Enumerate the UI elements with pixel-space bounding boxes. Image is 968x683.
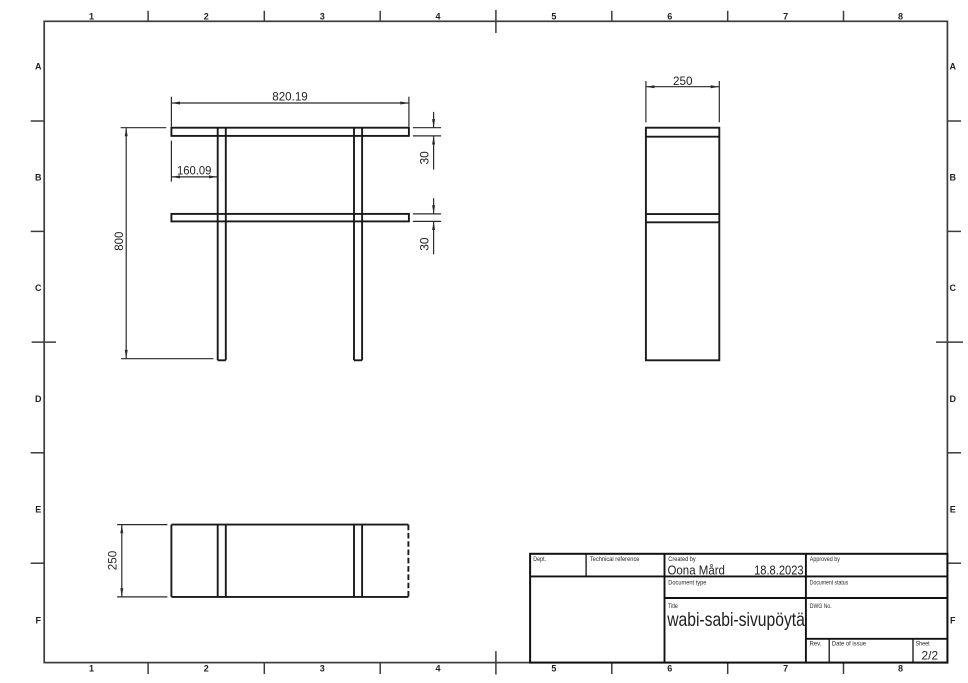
svg-text:6: 6 — [667, 663, 672, 673]
svg-text:Created by: Created by — [668, 556, 696, 563]
svg-text:DWG No.: DWG No. — [810, 603, 832, 610]
svg-text:30: 30 — [417, 151, 431, 165]
svg-text:7: 7 — [783, 663, 788, 673]
svg-text:F: F — [950, 615, 956, 625]
svg-text:Document type: Document type — [668, 580, 707, 587]
svg-text:Dept.: Dept. — [533, 556, 546, 563]
svg-text:1: 1 — [89, 11, 94, 21]
svg-text:4: 4 — [435, 11, 440, 21]
svg-text:18.8.2023: 18.8.2023 — [754, 564, 804, 578]
svg-text:A: A — [950, 62, 957, 72]
svg-text:D: D — [950, 394, 957, 404]
svg-text:8: 8 — [898, 11, 903, 21]
svg-text:30: 30 — [417, 237, 431, 251]
svg-text:2: 2 — [204, 11, 209, 21]
svg-text:5: 5 — [551, 663, 556, 673]
svg-text:B: B — [950, 172, 957, 182]
svg-text:E: E — [35, 505, 41, 515]
svg-text:8: 8 — [898, 663, 903, 673]
svg-text:E: E — [950, 505, 956, 515]
svg-text:4: 4 — [435, 663, 440, 673]
svg-text:250: 250 — [673, 74, 693, 88]
svg-text:F: F — [35, 615, 41, 625]
svg-text:Rev.: Rev. — [810, 640, 822, 647]
svg-text:5: 5 — [551, 11, 556, 21]
svg-text:wabi-sabi-sivupöytä: wabi-sabi-sivupöytä — [666, 609, 805, 631]
svg-text:Sheet: Sheet — [916, 640, 930, 647]
svg-text:820.19: 820.19 — [272, 89, 308, 103]
svg-text:6: 6 — [667, 11, 672, 21]
svg-text:C: C — [35, 283, 42, 293]
svg-text:3: 3 — [320, 11, 325, 21]
svg-text:2/2: 2/2 — [922, 649, 939, 663]
svg-text:D: D — [35, 394, 42, 404]
svg-text:2: 2 — [204, 663, 209, 673]
svg-text:1: 1 — [89, 663, 94, 673]
svg-text:160.09: 160.09 — [177, 164, 212, 178]
svg-text:250: 250 — [106, 550, 120, 570]
svg-text:3: 3 — [320, 663, 325, 673]
svg-text:Oona Mård: Oona Mård — [668, 563, 725, 577]
svg-text:Document status: Document status — [810, 580, 848, 587]
svg-text:Date of issue: Date of issue — [832, 641, 867, 648]
svg-text:A: A — [35, 62, 42, 72]
svg-text:Approved by: Approved by — [810, 556, 841, 563]
svg-text:Technical reference: Technical reference — [590, 556, 640, 563]
svg-text:800: 800 — [112, 231, 126, 250]
svg-text:B: B — [35, 172, 42, 182]
svg-text:C: C — [950, 283, 957, 293]
svg-text:7: 7 — [783, 11, 788, 21]
